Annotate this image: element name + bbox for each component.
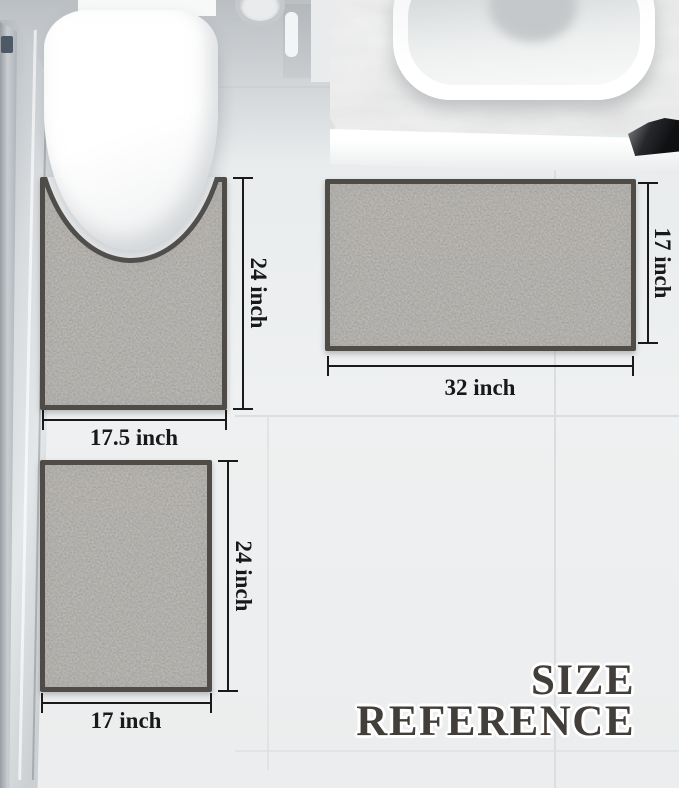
dimension-label-contour-width: 17.5 inch (90, 425, 178, 451)
size-reference-product-image: 24 inch 17.5 inch 32 inch 17 inch 24 inc… (0, 0, 679, 788)
large-rug (325, 179, 636, 351)
title-line-2: REFERENCE (356, 701, 635, 742)
small-rug-pile (45, 465, 207, 687)
large-rug-pile (330, 184, 631, 346)
vessel-sink (393, 0, 655, 100)
dimension-line-small-height (227, 460, 229, 692)
dimension-line-contour-width (42, 419, 227, 421)
dimension-label-small-height: 24 inch (230, 541, 256, 612)
size-reference-title: SIZE REFERENCE (356, 660, 635, 742)
dimension-label-small-width: 17 inch (91, 708, 162, 734)
dimension-label-large-height: 17 inch (649, 228, 675, 299)
dimension-label-contour-height: 24 inch (245, 258, 271, 329)
dimension-line-small-width (41, 702, 212, 704)
shower-door-handle (1, 36, 13, 53)
dimension-label-large-width: 32 inch (445, 375, 516, 401)
floor-tile-line (235, 750, 679, 752)
title-line-1: SIZE (356, 660, 635, 701)
dimension-line-large-width (327, 365, 634, 367)
floor-tile-line (235, 415, 679, 417)
dimension-line-contour-height (242, 177, 244, 410)
toilet-paper-roll (285, 12, 298, 57)
small-rug (40, 460, 212, 692)
floor-tile-line (267, 415, 269, 770)
